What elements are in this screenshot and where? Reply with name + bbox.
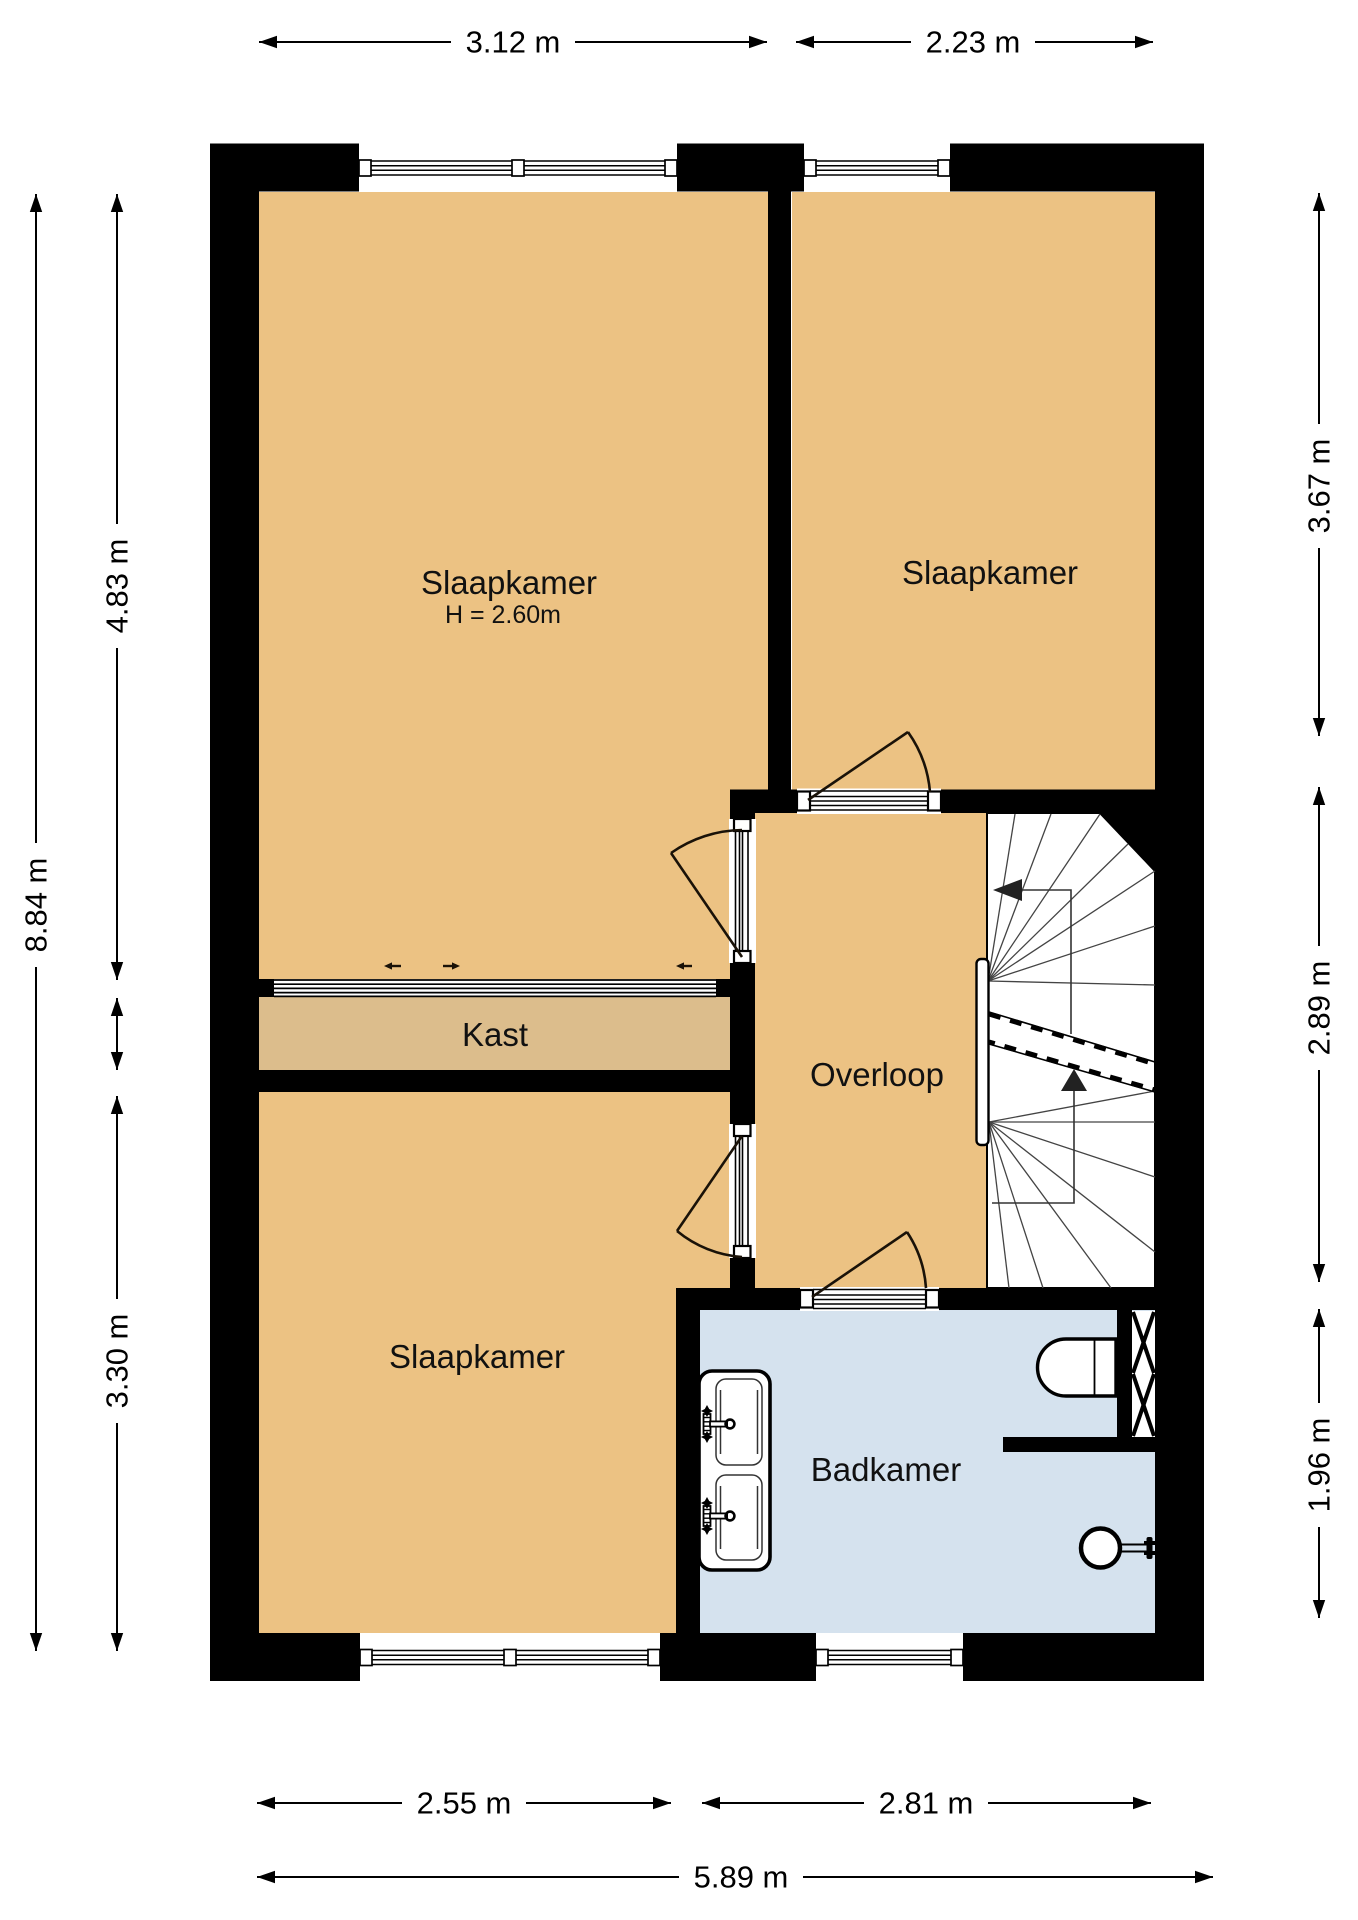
svg-text:2.81 m: 2.81 m [879,1786,974,1821]
svg-text:Slaapkamer: Slaapkamer [389,1338,565,1375]
svg-text:3.30 m: 3.30 m [100,1314,135,1409]
svg-text:1.96 m: 1.96 m [1302,1418,1337,1513]
svg-text:Slaapkamer: Slaapkamer [902,554,1078,591]
svg-text:8.84 m: 8.84 m [19,858,54,953]
svg-text:H = 2.60m: H = 2.60m [445,601,561,629]
svg-text:2.23 m: 2.23 m [926,25,1021,60]
svg-text:3.67 m: 3.67 m [1302,439,1337,534]
svg-text:2.55 m: 2.55 m [417,1786,512,1821]
svg-text:Overloop: Overloop [810,1056,944,1093]
svg-text:Slaapkamer: Slaapkamer [421,564,597,601]
svg-text:2.89 m: 2.89 m [1302,961,1337,1056]
svg-text:5.89 m: 5.89 m [694,1860,789,1895]
svg-text:3.12 m: 3.12 m [466,25,561,60]
svg-text:4.83 m: 4.83 m [100,539,135,634]
svg-text:Kast: Kast [462,1016,528,1053]
svg-text:Badkamer: Badkamer [811,1451,961,1488]
